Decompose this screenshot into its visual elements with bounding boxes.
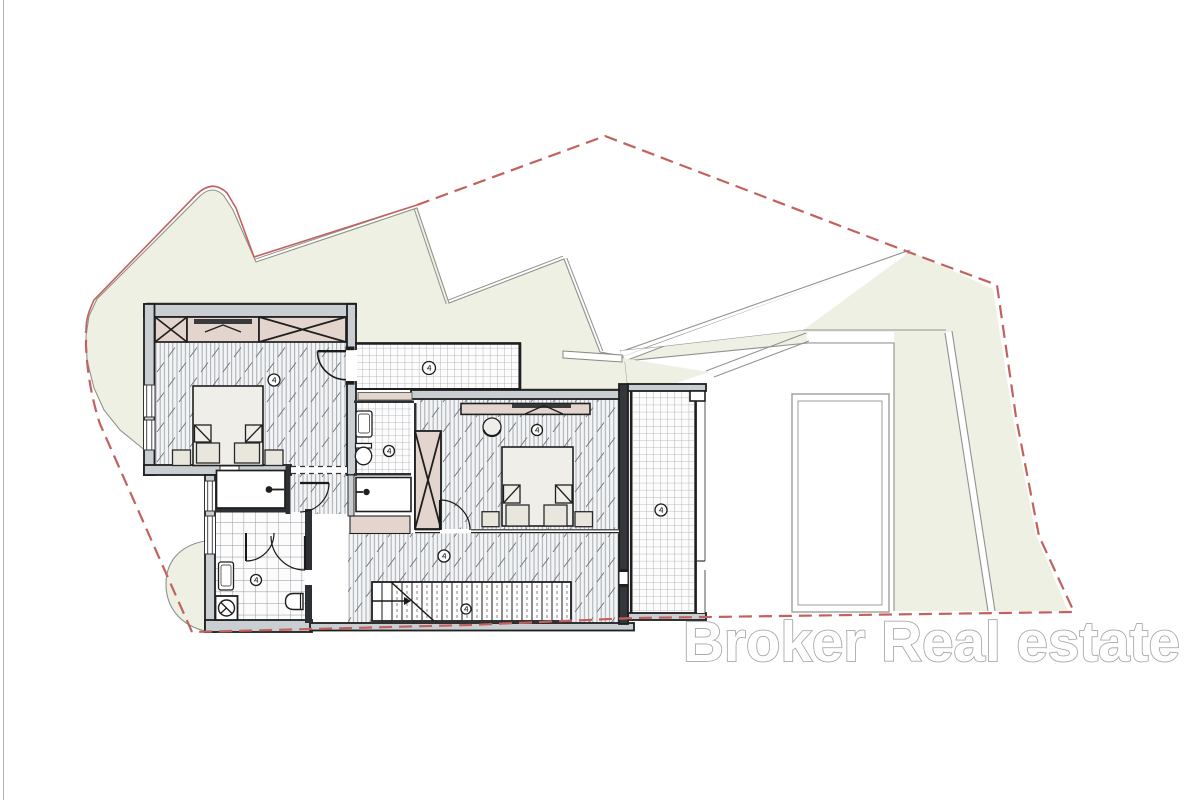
svg-text:Broker Real estate: Broker Real estate	[683, 610, 1180, 674]
